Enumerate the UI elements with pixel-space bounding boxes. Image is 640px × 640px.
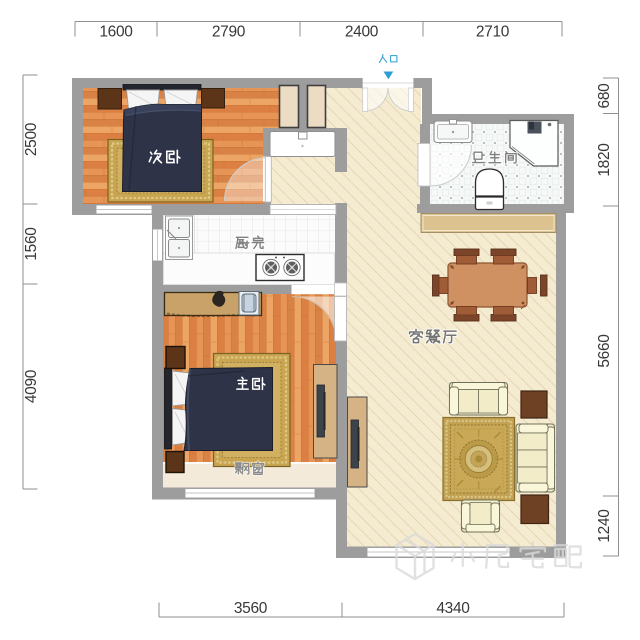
svg-text:2400: 2400 (345, 24, 379, 41)
svg-text:5660: 5660 (596, 334, 613, 368)
svg-text:4090: 4090 (23, 369, 40, 403)
svg-text:2710: 2710 (476, 24, 510, 41)
svg-text:1240: 1240 (596, 509, 613, 543)
svg-text:680: 680 (596, 83, 613, 109)
svg-text:1600: 1600 (99, 24, 133, 41)
svg-text:1560: 1560 (23, 227, 40, 261)
svg-text:3560: 3560 (234, 600, 268, 617)
svg-text:2790: 2790 (212, 24, 246, 41)
svg-text:2500: 2500 (23, 122, 40, 156)
svg-text:1820: 1820 (596, 143, 613, 177)
svg-text:4340: 4340 (436, 600, 470, 617)
